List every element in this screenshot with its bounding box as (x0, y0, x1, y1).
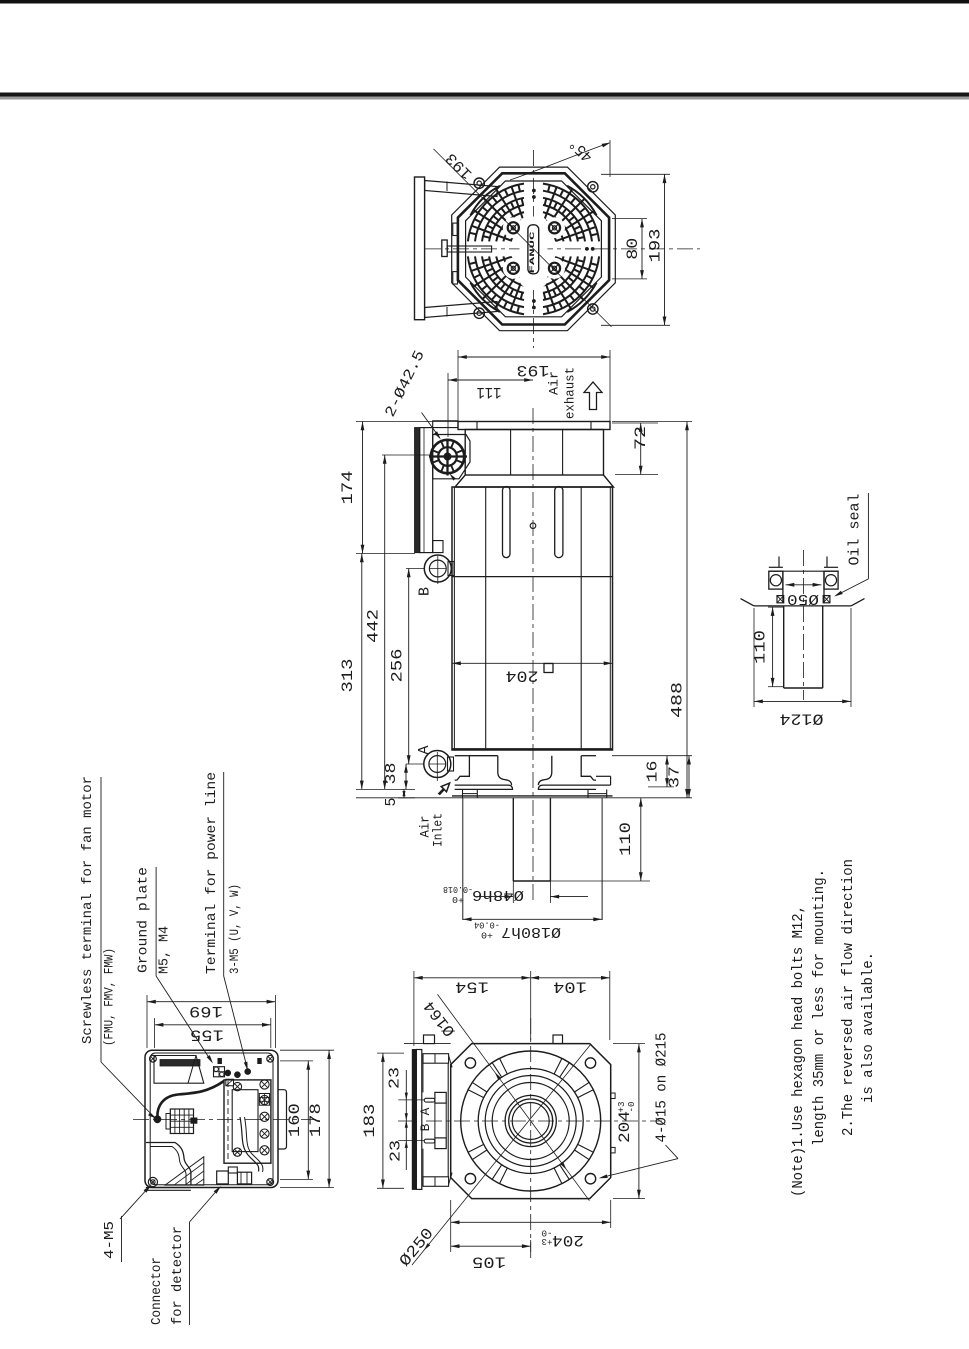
svg-text:23: 23 (387, 1067, 404, 1089)
svg-text:FANUC: FANUC (529, 231, 536, 274)
svg-text:Ø180h7: Ø180h7 (501, 923, 561, 940)
svg-text:204: 204 (552, 1231, 584, 1249)
svg-text:-0: -0 (627, 1102, 637, 1113)
svg-text:204: 204 (616, 1111, 634, 1143)
svg-text:110: 110 (617, 822, 635, 856)
svg-text:A: A (416, 745, 433, 754)
svg-text:+0: +0 (452, 894, 464, 904)
svg-text:B: B (418, 1123, 433, 1131)
svg-text:16: 16 (645, 761, 662, 783)
svg-text:Oil seal: Oil seal (847, 494, 864, 566)
svg-text:Terminal for power line: Terminal for power line (204, 772, 220, 974)
svg-text:4-M5: 4-M5 (102, 1221, 118, 1259)
svg-text:178: 178 (307, 1103, 325, 1137)
svg-text:for detector: for detector (170, 1226, 186, 1325)
svg-text:204: 204 (506, 667, 539, 685)
svg-text:105: 105 (472, 1253, 506, 1271)
svg-text:174: 174 (339, 471, 357, 505)
svg-text:A: A (418, 1107, 433, 1115)
svg-text:exhaust: exhaust (563, 367, 578, 419)
svg-text:442: 442 (365, 609, 383, 643)
svg-text:is also available.: is also available. (860, 952, 877, 1103)
svg-text:38: 38 (383, 763, 400, 785)
svg-text:111: 111 (477, 383, 502, 401)
svg-text:Screwless terminal for fan mot: Screwless terminal for fan motor (80, 776, 96, 1044)
svg-text:5: 5 (383, 797, 400, 806)
svg-text:2.The reversed air flow direct: 2.The reversed air flow direction (840, 859, 857, 1136)
svg-text:155: 155 (190, 1026, 224, 1044)
svg-text:Ø124: Ø124 (780, 710, 824, 728)
svg-text:length 35mm or less for mounti: length 35mm or less for mounting. (811, 869, 828, 1146)
svg-text:-0: -0 (542, 1228, 553, 1238)
svg-text:154: 154 (455, 978, 489, 996)
svg-text:4-Ø15 on Ø215: 4-Ø15 on Ø215 (654, 1033, 671, 1143)
svg-text:+3: +3 (617, 1102, 627, 1113)
svg-text:80: 80 (624, 238, 642, 260)
svg-text:3-M5 (U, V, W): 3-M5 (U, V, W) (227, 884, 242, 974)
svg-text:Ø48h6: Ø48h6 (472, 886, 524, 903)
svg-text:(FMU, FMV, FMW): (FMU, FMV, FMW) (102, 948, 117, 1046)
svg-text:256: 256 (389, 649, 407, 683)
svg-text:488: 488 (669, 682, 687, 718)
svg-text:104: 104 (553, 978, 587, 996)
svg-text:Ground plate: Ground plate (136, 867, 152, 973)
svg-text:B: B (417, 587, 434, 596)
svg-text:-0.04: -0.04 (474, 920, 500, 930)
svg-text:183: 183 (361, 1104, 379, 1138)
svg-text:169: 169 (189, 1002, 223, 1020)
svg-text:Connector: Connector (149, 1257, 165, 1325)
svg-text:+3: +3 (542, 1236, 553, 1246)
svg-text:(Note)1.Use hexagon head bolts: (Note)1.Use hexagon head bolts M12, (790, 905, 807, 1197)
svg-text:72: 72 (632, 426, 650, 450)
svg-text:37: 37 (667, 766, 684, 788)
svg-text:-0.018: -0.018 (443, 884, 473, 894)
svg-text:193: 193 (647, 229, 665, 263)
svg-text:160: 160 (286, 1103, 304, 1137)
svg-text:M5, M4: M5, M4 (157, 926, 173, 974)
svg-text:313: 313 (339, 659, 357, 693)
svg-text:23: 23 (388, 1140, 405, 1162)
svg-text:193: 193 (517, 361, 550, 379)
svg-text:Ø50: Ø50 (787, 590, 819, 607)
svg-text:Inlet: Inlet (431, 813, 446, 847)
svg-text:+0: +0 (481, 930, 493, 940)
